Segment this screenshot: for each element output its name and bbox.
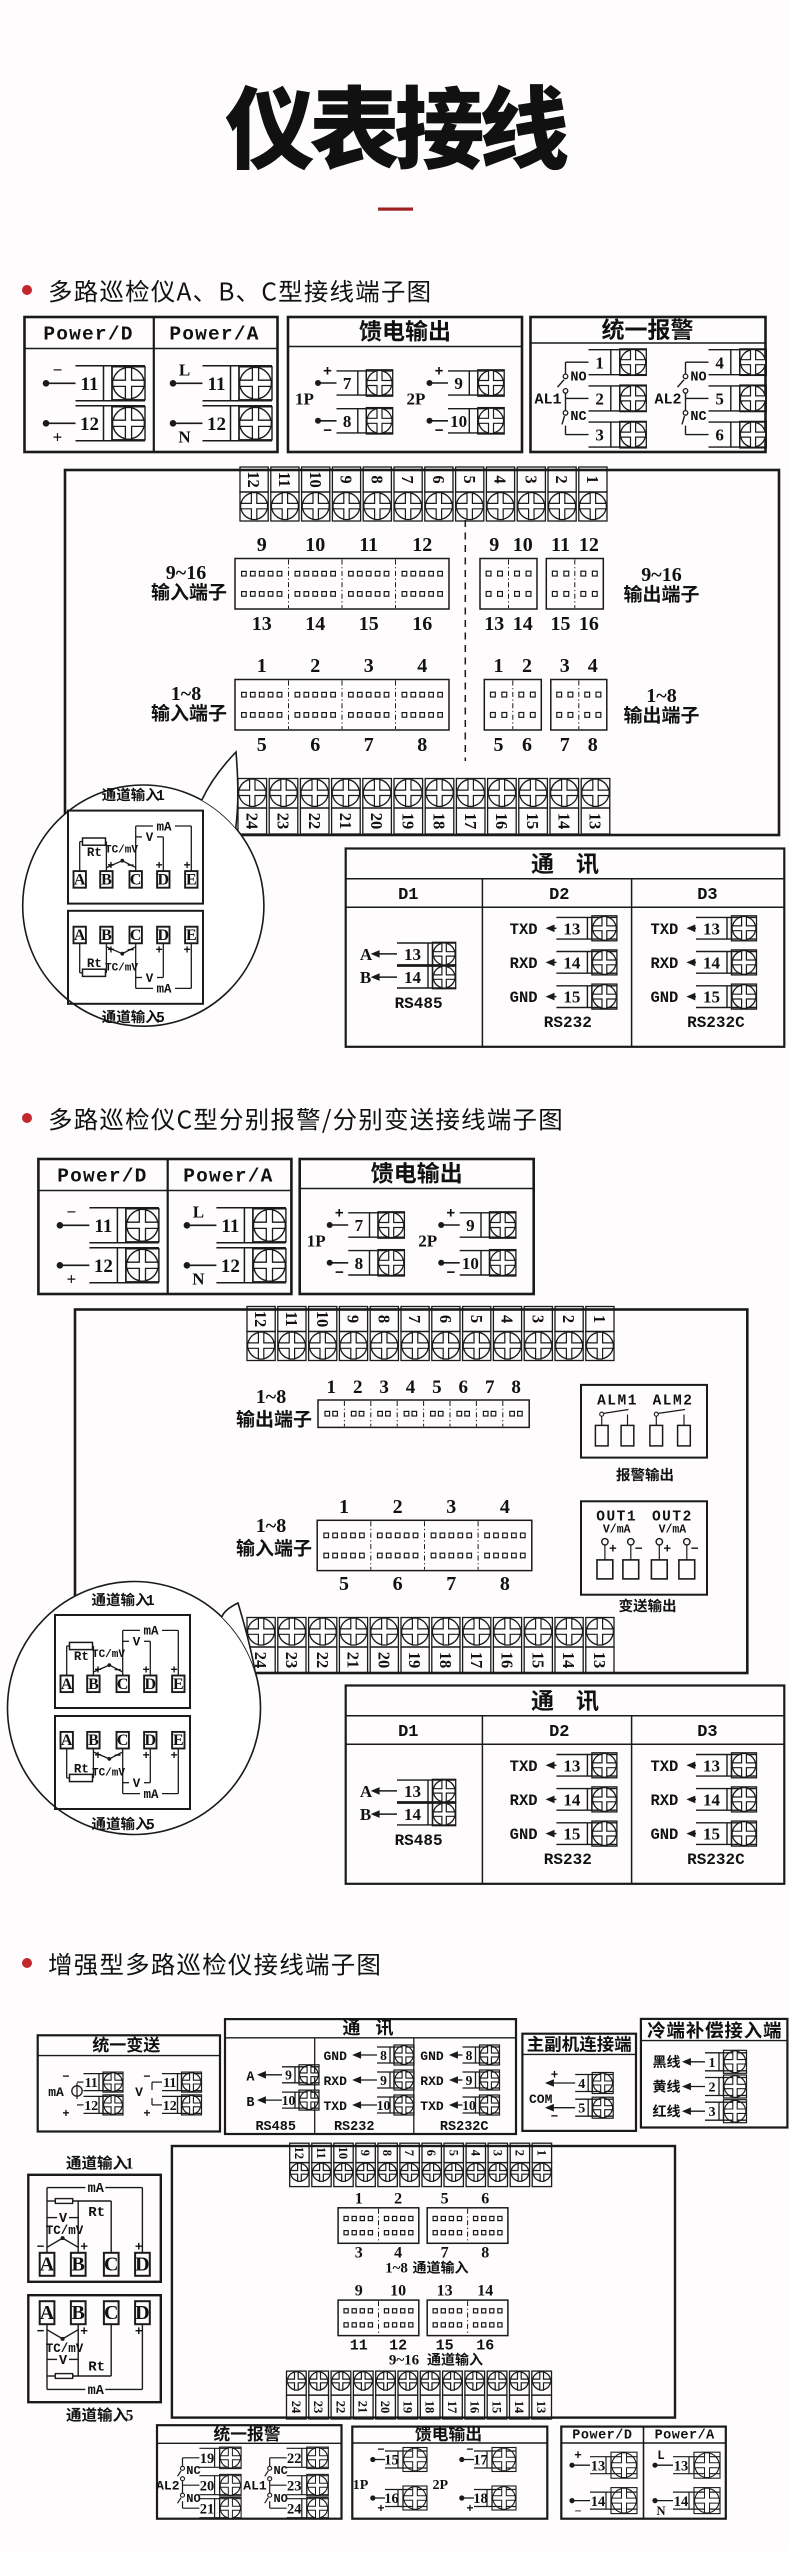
svg-text:A: A [360,945,373,964]
svg-text:RXD: RXD [323,2074,347,2089]
svg-text:18: 18 [473,2491,488,2507]
svg-text:8: 8 [511,1377,521,1398]
svg-text:2: 2 [595,390,604,409]
svg-text:10: 10 [305,534,325,556]
svg-text:+: + [135,2240,143,2255]
svg-text:16: 16 [467,2401,481,2414]
svg-text:12: 12 [244,471,263,488]
svg-text:21: 21 [356,2401,370,2414]
svg-text:TC/mV: TC/mV [105,845,138,857]
svg-text:12: 12 [94,1256,113,1277]
svg-text:V: V [59,2354,68,2369]
svg-text:4: 4 [468,2150,482,2157]
svg-text:1: 1 [535,2150,549,2156]
svg-text:10: 10 [513,534,533,556]
svg-text:11: 11 [275,472,294,488]
svg-text:1: 1 [595,353,604,372]
svg-text:+: + [107,944,114,958]
svg-text:+: + [323,364,332,381]
svg-text:AL1: AL1 [243,2479,267,2494]
svg-text:16: 16 [476,2338,494,2355]
svg-text:A: A [40,2302,55,2324]
svg-text:14: 14 [703,954,721,973]
svg-text:9~16: 9~16 [641,564,681,586]
svg-text:15: 15 [563,1825,580,1844]
svg-text:13: 13 [404,945,421,964]
svg-text:−: − [53,360,63,379]
svg-text:−: − [691,1542,699,1557]
svg-text:COM: COM [529,2092,553,2107]
svg-text:−: − [37,2240,45,2255]
svg-text:23: 23 [287,2478,302,2494]
svg-text:13: 13 [674,2458,689,2474]
svg-text:B: B [360,968,371,987]
svg-text:5: 5 [578,2102,585,2117]
svg-text:D: D [145,1676,157,1693]
svg-text:4: 4 [394,2245,402,2262]
svg-text:D: D [158,871,170,888]
svg-text:−: − [127,859,134,873]
svg-text:4: 4 [500,1496,510,1518]
svg-text:7: 7 [364,734,374,756]
svg-text:18: 18 [436,1652,455,1669]
svg-text:6: 6 [459,1377,469,1398]
svg-text:9: 9 [355,2283,363,2300]
svg-text:−: − [127,944,134,958]
svg-text:mA: mA [156,820,172,834]
svg-text:1~8: 1~8 [171,683,201,705]
svg-text:8: 8 [343,412,352,431]
svg-text:17: 17 [461,813,480,830]
svg-text:15: 15 [563,988,580,1007]
svg-text:2: 2 [310,655,320,677]
svg-text:7: 7 [441,2245,449,2262]
svg-text:+: + [80,2324,88,2339]
svg-text:12: 12 [163,2099,177,2114]
svg-text:11: 11 [314,2147,328,2159]
svg-text:8: 8 [588,734,598,756]
svg-text:18: 18 [430,813,449,830]
svg-text:15: 15 [490,2401,504,2414]
svg-text:12: 12 [221,1256,240,1277]
svg-text:E: E [186,927,197,944]
svg-text:C: C [130,871,142,888]
svg-text:1: 1 [146,1594,155,1610]
svg-text:L: L [657,2449,665,2463]
svg-text:13: 13 [586,813,605,830]
svg-text:2: 2 [559,1315,578,1323]
svg-text:Rt: Rt [74,1650,89,1664]
svg-text:AL2: AL2 [654,391,681,408]
svg-text:3: 3 [364,655,374,677]
svg-text:5: 5 [156,1011,165,1027]
svg-text:5: 5 [715,390,724,409]
svg-text:ALM2: ALM2 [653,1394,694,1410]
svg-text:7: 7 [405,1315,424,1323]
svg-text:16: 16 [384,2491,399,2507]
svg-text:1: 1 [355,2190,363,2207]
svg-text:7: 7 [446,1573,456,1595]
svg-text:4: 4 [715,353,724,372]
svg-text:RS232: RS232 [334,2120,375,2135]
svg-text:24: 24 [287,2501,302,2517]
svg-text:21: 21 [336,813,355,830]
svg-text:2P: 2P [418,1231,437,1250]
svg-text:RS232: RS232 [544,1014,592,1032]
svg-text:−: − [143,2070,150,2084]
svg-text:16: 16 [498,1652,517,1669]
svg-text:20: 20 [200,2478,215,2494]
svg-text:13: 13 [591,2458,606,2474]
svg-text:2: 2 [709,2081,716,2096]
svg-text:9~16: 9~16 [166,562,206,584]
svg-text:7: 7 [560,734,570,756]
svg-text:+: + [142,1749,149,1763]
svg-text:2: 2 [353,1377,363,1398]
svg-text:RS485: RS485 [395,1832,443,1850]
svg-text:GND: GND [650,989,678,1007]
svg-text:+: + [434,364,443,381]
svg-text:V: V [133,1777,141,1791]
svg-text:Power/A: Power/A [655,2429,716,2444]
svg-text:15: 15 [436,2338,454,2355]
svg-text:13: 13 [563,1756,580,1775]
svg-text:20: 20 [367,813,386,830]
svg-text:L: L [193,1202,204,1221]
svg-text:D: D [135,2302,149,2324]
svg-text:GND: GND [510,989,538,1007]
svg-text:Rt: Rt [87,957,102,971]
svg-text:8: 8 [500,1573,510,1595]
svg-text:13: 13 [404,1782,421,1801]
svg-text:4: 4 [498,1315,517,1323]
svg-text:AL2: AL2 [156,2479,180,2494]
svg-text:1: 1 [156,789,165,805]
svg-text:A: A [74,927,86,944]
svg-text:3: 3 [379,1377,389,1398]
svg-text:1: 1 [590,1315,609,1323]
svg-text:8: 8 [417,734,427,756]
svg-text:9: 9 [358,2150,372,2156]
svg-text:9: 9 [454,374,463,393]
svg-text:14: 14 [404,968,422,987]
svg-text:TC/mV: TC/mV [105,963,138,975]
svg-text:11: 11 [81,374,99,395]
svg-text:mA: mA [48,2085,64,2100]
svg-text:13: 13 [484,613,504,635]
svg-text:−: − [114,1749,121,1763]
svg-text:15: 15 [551,613,571,635]
svg-text:19: 19 [400,2401,414,2414]
svg-text:mA: mA [88,2384,105,2399]
svg-text:+: + [574,2449,582,2463]
svg-text:RS485: RS485 [255,2120,296,2135]
svg-text:V: V [135,2085,143,2100]
svg-text:18: 18 [423,2401,437,2414]
svg-text:+: + [143,2107,150,2121]
svg-text:5: 5 [339,1573,349,1595]
svg-text:1: 1 [327,1377,337,1398]
svg-text:22: 22 [313,1652,332,1669]
svg-text:22: 22 [287,2451,302,2467]
svg-text:5: 5 [441,2190,449,2207]
svg-text:−: − [551,2110,559,2124]
svg-text:14: 14 [703,1791,721,1810]
svg-text:Power/D: Power/D [57,1166,147,1188]
svg-text:2: 2 [552,475,571,483]
svg-text:13: 13 [563,919,580,938]
svg-text:mA: mA [156,983,172,997]
svg-text:7: 7 [343,374,352,393]
svg-text:TC/mV: TC/mV [46,2342,84,2356]
svg-text:2: 2 [522,655,532,677]
svg-text:GND: GND [420,2049,444,2064]
svg-text:10: 10 [282,2093,296,2108]
svg-text:V: V [133,1636,141,1650]
svg-text:14: 14 [563,1791,581,1810]
svg-text:B: B [88,1676,99,1693]
svg-text:3: 3 [560,655,570,677]
svg-text:+: + [446,1206,455,1223]
svg-text:14: 14 [674,2494,689,2510]
svg-text:6: 6 [424,2150,438,2156]
svg-text:8: 8 [380,2150,394,2156]
svg-text:14: 14 [404,1805,422,1824]
svg-text:A: A [74,871,86,888]
svg-text:16: 16 [579,613,599,635]
svg-text:20: 20 [374,1652,393,1669]
svg-text:5: 5 [467,1315,486,1323]
svg-text:2P: 2P [407,389,426,408]
svg-text:19: 19 [405,1652,424,1669]
svg-text:+: + [53,427,63,446]
svg-text:mA: mA [88,2182,105,2197]
svg-text:A: A [360,1782,373,1801]
svg-text:16: 16 [412,613,432,635]
svg-text:8: 8 [355,1254,364,1273]
svg-text:11: 11 [359,534,378,556]
svg-text:GND: GND [650,1826,678,1844]
svg-text:NO: NO [186,2492,200,2506]
svg-text:23: 23 [282,1652,301,1669]
svg-text:14: 14 [559,1652,578,1669]
svg-text:Rt: Rt [87,846,102,860]
svg-text:7: 7 [355,1216,364,1235]
svg-text:9: 9 [337,475,356,483]
svg-text:D3: D3 [697,1723,717,1742]
svg-text:TXD: TXD [420,2099,444,2114]
svg-text:17: 17 [467,1652,486,1669]
svg-text:1: 1 [583,475,602,483]
svg-text:14: 14 [305,613,325,635]
svg-text:10: 10 [377,2098,391,2113]
svg-text:11: 11 [163,2076,176,2091]
svg-text:1~8: 1~8 [256,1515,286,1537]
svg-text:6: 6 [436,1315,455,1323]
svg-text:16: 16 [492,813,511,830]
svg-text:14: 14 [563,954,581,973]
svg-text:12: 12 [80,414,99,435]
svg-text:NO: NO [690,371,706,386]
svg-text:+: + [67,1269,77,1288]
svg-text:6: 6 [715,426,724,445]
svg-text:N: N [178,427,191,446]
svg-text:19: 19 [200,2451,215,2467]
svg-text:1~8: 1~8 [385,2261,408,2277]
svg-text:24: 24 [242,813,261,830]
svg-text:Power/A: Power/A [169,324,259,346]
svg-text:13: 13 [590,1652,609,1669]
svg-text:1~8: 1~8 [256,1386,286,1408]
svg-text:5: 5 [126,2408,134,2425]
svg-text:2: 2 [393,1496,403,1518]
svg-text:10: 10 [450,412,467,431]
svg-text:−: − [114,1664,121,1678]
svg-text:9: 9 [489,534,499,556]
svg-text:mA: mA [143,1625,159,1639]
svg-text:E: E [173,1676,184,1693]
svg-text:B: B [72,2302,85,2324]
svg-text:11: 11 [94,1216,112,1237]
svg-text:TXD: TXD [323,2099,347,2114]
svg-text:3: 3 [528,1315,547,1323]
svg-text:5: 5 [432,1377,442,1398]
svg-text:V/mA: V/mA [603,1524,631,1537]
svg-text:5: 5 [494,734,504,756]
svg-text:C: C [104,2254,118,2276]
svg-text:B: B [72,2254,85,2276]
svg-text:B: B [101,927,112,944]
svg-text:V: V [146,831,154,845]
svg-text:N: N [656,2504,665,2518]
svg-text:A: A [246,2071,255,2086]
svg-text:21: 21 [344,1652,363,1669]
svg-text:+: + [609,1542,617,1557]
svg-text:8: 8 [466,2048,473,2063]
svg-text:A: A [61,1676,73,1693]
svg-text:14: 14 [477,2283,493,2300]
svg-text:B: B [246,2096,254,2111]
svg-text:GND: GND [510,1826,538,1844]
svg-text:9: 9 [257,534,267,556]
svg-text:Power/D: Power/D [572,2429,632,2444]
svg-text:Power/A: Power/A [183,1166,273,1188]
svg-text:+: + [142,1664,149,1678]
svg-text:+: + [155,944,162,958]
svg-text:D: D [158,927,170,944]
svg-text:12: 12 [292,2147,306,2160]
svg-text:RS232: RS232 [544,1851,592,1869]
svg-text:TC/mV: TC/mV [46,2224,84,2238]
svg-text:6: 6 [522,734,532,756]
svg-text:−: − [37,2324,45,2339]
svg-text:11: 11 [350,2338,368,2355]
svg-text:22: 22 [334,2401,348,2414]
svg-text:RXD: RXD [650,1792,678,1810]
svg-text:B: B [360,1805,371,1824]
svg-text:TXD: TXD [510,921,538,939]
svg-text:TXD: TXD [510,1758,538,1776]
svg-text:14: 14 [554,813,573,830]
svg-text:−: − [335,1265,344,1282]
svg-text:15: 15 [528,1652,547,1669]
svg-text:+: + [183,859,190,873]
svg-text:C: C [104,2302,118,2324]
svg-text:21: 21 [200,2501,215,2517]
svg-text:10: 10 [313,1311,332,1328]
svg-text:13: 13 [703,919,720,938]
svg-text:15: 15 [523,813,542,830]
svg-text:8: 8 [374,1315,393,1323]
svg-text:9: 9 [285,2068,292,2083]
svg-text:+: + [663,1542,671,1557]
svg-text:15: 15 [703,1825,720,1844]
svg-text:4: 4 [588,655,598,677]
svg-text:RXD: RXD [510,955,538,973]
svg-text:C: C [117,1732,129,1749]
svg-text:22: 22 [305,813,324,830]
svg-text:−: − [446,1265,455,1282]
svg-text:13: 13 [437,2283,453,2300]
svg-text:15: 15 [384,2453,399,2469]
svg-text:RS232C: RS232C [440,2120,489,2135]
svg-text:L: L [179,360,190,379]
svg-text:−: − [635,1542,643,1557]
svg-text:1~8: 1~8 [646,685,676,707]
svg-text:13: 13 [534,2401,548,2414]
svg-text:6: 6 [429,475,448,483]
svg-text:2: 2 [394,2190,402,2207]
svg-text:+: + [155,859,162,873]
svg-text:NO: NO [273,2492,287,2506]
svg-text:12: 12 [251,1311,270,1328]
svg-text:15: 15 [359,613,379,635]
svg-text:RS485: RS485 [395,995,443,1013]
svg-text:5: 5 [446,2150,460,2156]
svg-text:Rt: Rt [88,2205,105,2221]
svg-text:D3: D3 [697,886,717,905]
svg-text:+: + [107,859,114,873]
svg-text:7: 7 [485,1377,495,1398]
svg-text:−: − [434,423,443,440]
svg-text:D2: D2 [549,1723,569,1742]
svg-text:1P: 1P [353,2478,369,2493]
svg-text:TXD: TXD [650,921,678,939]
svg-text:12: 12 [579,534,599,556]
svg-text:+: + [62,2107,69,2121]
svg-text:6: 6 [393,1573,403,1595]
svg-text:3: 3 [709,2105,716,2120]
svg-text:AL1: AL1 [534,391,561,408]
svg-text:−: − [67,1202,77,1221]
svg-text:C: C [117,1676,129,1693]
svg-text:10: 10 [390,2283,406,2300]
svg-text:2P: 2P [433,2478,449,2493]
svg-text:+: + [183,944,190,958]
svg-text:TC/mV: TC/mV [92,1768,125,1780]
svg-text:3: 3 [521,475,540,483]
svg-text:10: 10 [336,2147,350,2160]
svg-text:12: 12 [84,2099,98,2114]
svg-text:+: + [335,1206,344,1223]
svg-text:12: 12 [412,534,432,556]
svg-text:4: 4 [578,2077,585,2092]
svg-text:D2: D2 [549,886,569,905]
svg-text:5: 5 [146,1818,155,1834]
svg-text:10: 10 [462,2098,476,2113]
svg-text:1P: 1P [307,1231,326,1250]
svg-text:ALM1: ALM1 [597,1394,638,1410]
